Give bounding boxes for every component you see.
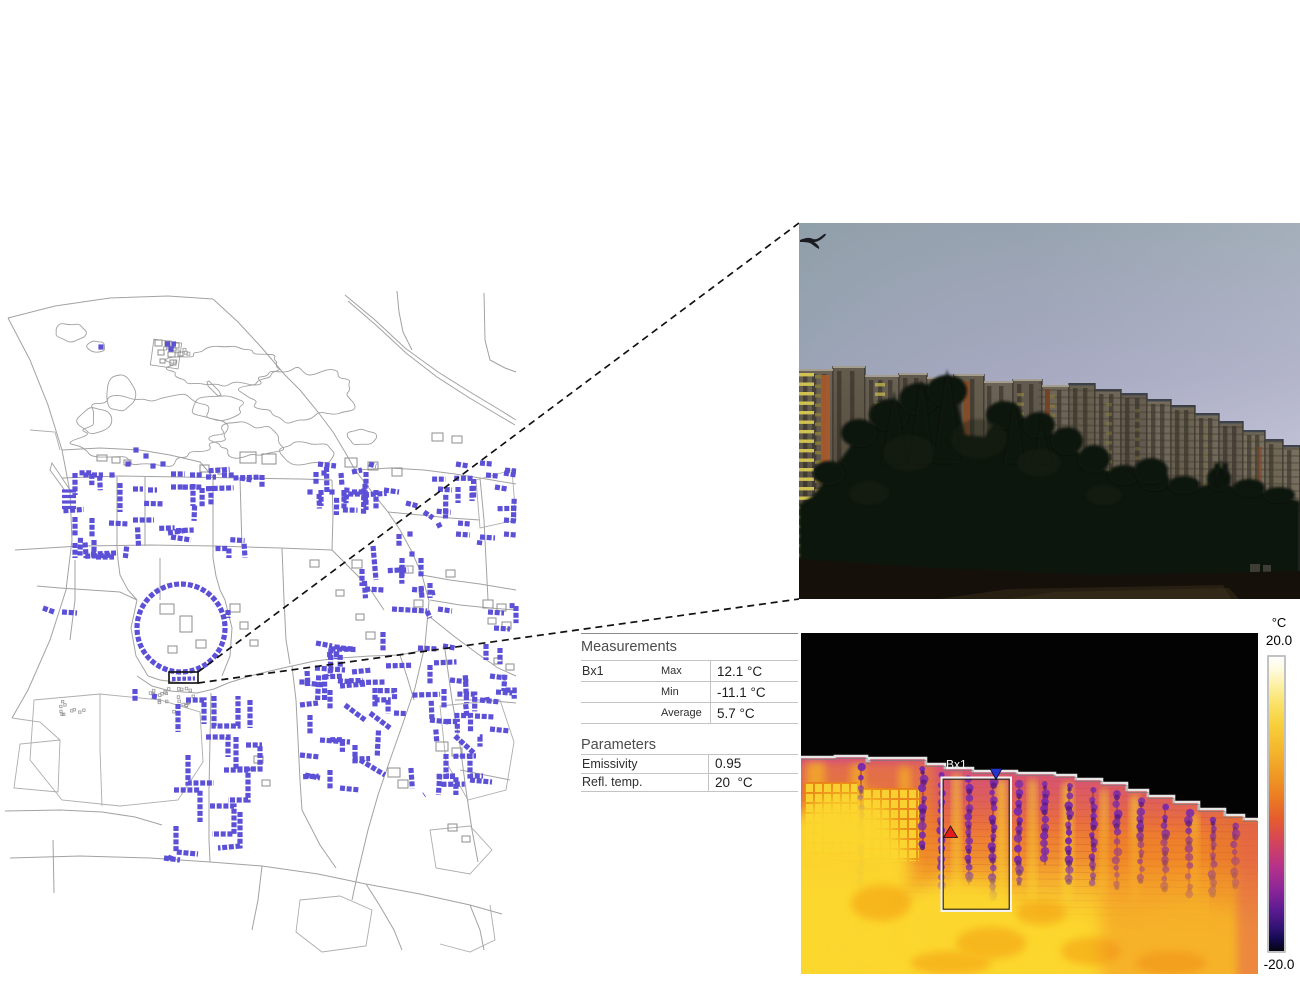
svg-text:Bx1: Bx1 <box>946 758 967 772</box>
